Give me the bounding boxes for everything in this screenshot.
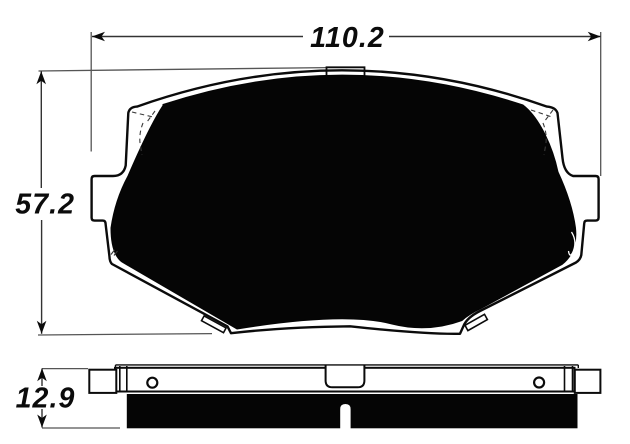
svg-text:12.9: 12.9 [16,383,76,415]
svg-text:110.2: 110.2 [310,22,385,54]
svg-text:57.2: 57.2 [15,189,75,221]
